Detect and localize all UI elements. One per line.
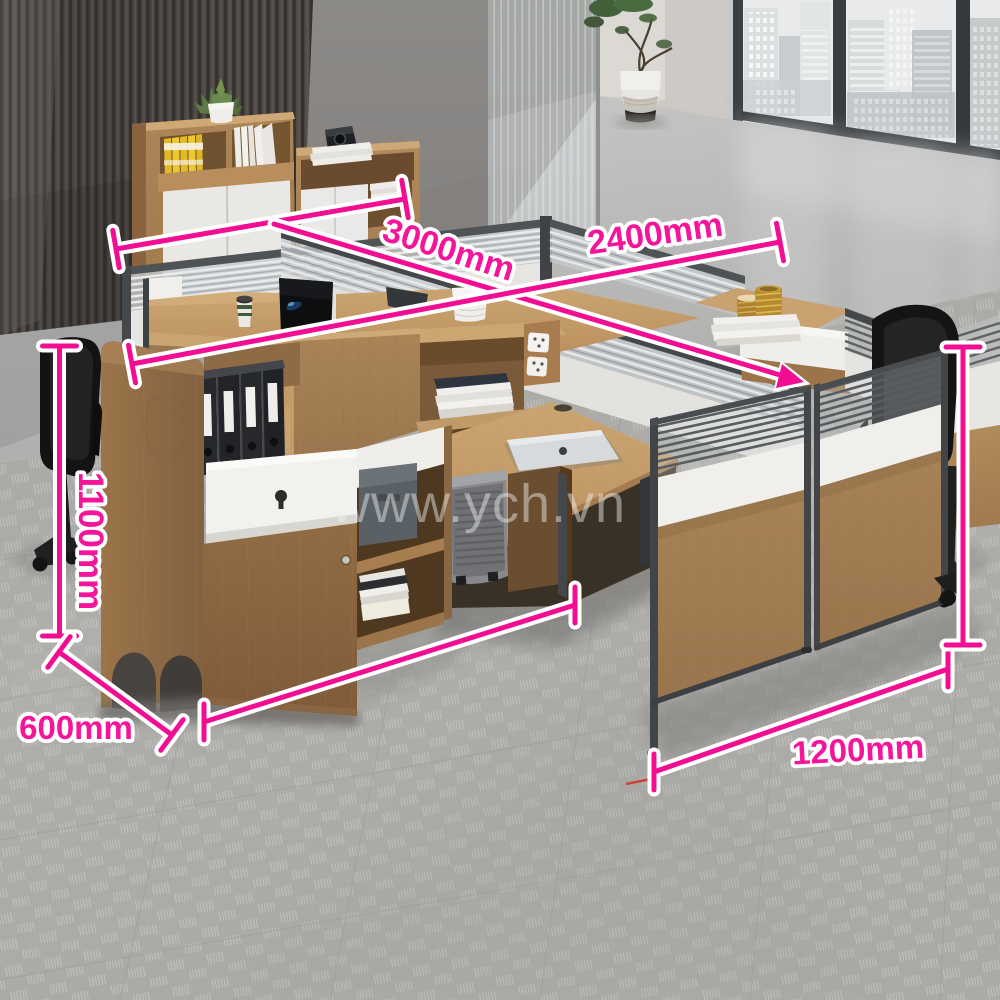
svg-text:1200mm: 1200mm: [791, 728, 925, 772]
svg-text:1100mm: 1100mm: [71, 472, 110, 610]
svg-text:600mm: 600mm: [19, 709, 133, 746]
svg-text:www.ych.vn: www.ych.vn: [330, 474, 626, 534]
